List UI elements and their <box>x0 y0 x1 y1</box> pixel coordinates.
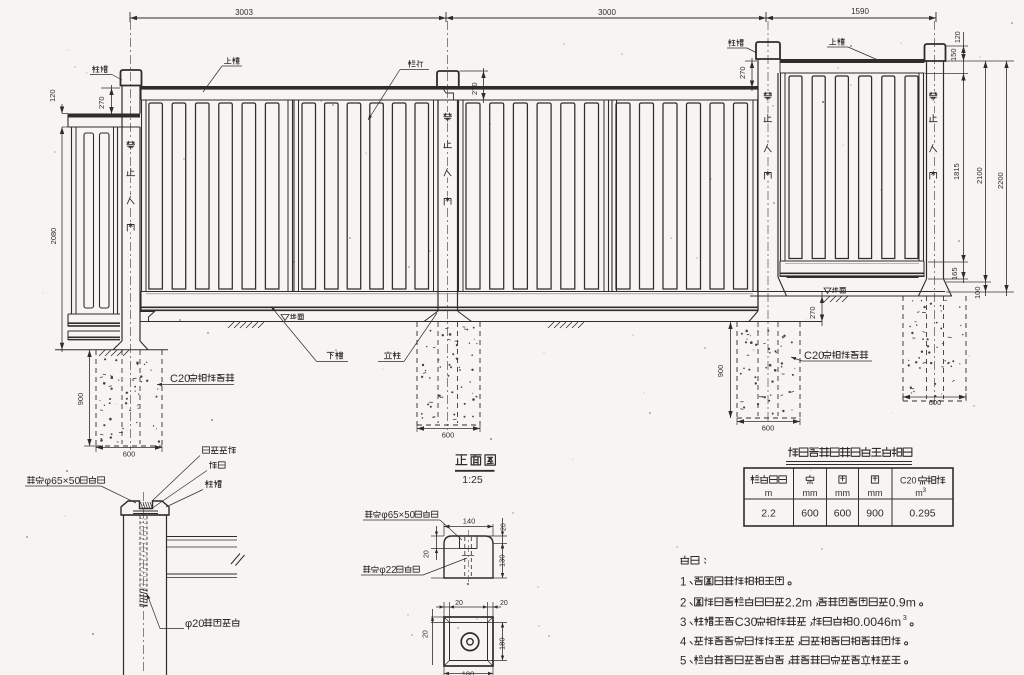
svg-text:2200: 2200 <box>996 172 1005 189</box>
svg-text:3003: 3003 <box>235 8 253 17</box>
svg-text:20: 20 <box>501 523 508 531</box>
svg-text:270: 270 <box>738 66 747 79</box>
svg-text:2.2: 2.2 <box>761 508 776 520</box>
svg-text:1: 1 <box>680 577 686 589</box>
svg-text:m: m <box>765 488 773 498</box>
svg-text:600: 600 <box>801 508 819 520</box>
svg-text:120: 120 <box>48 89 57 102</box>
svg-text:φ20: φ20 <box>185 618 204 630</box>
svg-text:140: 140 <box>463 517 476 526</box>
svg-text:2.2m: 2.2m <box>785 596 812 610</box>
svg-text:20: 20 <box>424 550 431 558</box>
svg-text:900: 900 <box>866 508 884 520</box>
svg-text:900: 900 <box>716 365 725 378</box>
svg-text:20: 20 <box>455 600 463 607</box>
svg-text:2: 2 <box>680 598 686 610</box>
svg-text:2080: 2080 <box>49 228 58 245</box>
svg-text:1815: 1815 <box>952 163 961 180</box>
svg-text:mm: mm <box>835 488 850 498</box>
svg-text:0.295: 0.295 <box>909 508 935 520</box>
svg-text:1:25: 1:25 <box>462 474 483 486</box>
svg-text:180: 180 <box>498 637 507 650</box>
svg-text:180: 180 <box>462 670 475 675</box>
svg-text:C20: C20 <box>804 350 824 362</box>
svg-text:165: 165 <box>950 267 959 280</box>
svg-text:600: 600 <box>929 398 942 407</box>
svg-text:900: 900 <box>76 393 85 406</box>
svg-text:150: 150 <box>949 48 958 61</box>
svg-text:C30: C30 <box>735 615 758 629</box>
svg-text:20: 20 <box>500 600 508 607</box>
svg-text:0.9m: 0.9m <box>889 596 916 610</box>
svg-text:3: 3 <box>923 487 927 494</box>
svg-text:600: 600 <box>834 508 852 520</box>
svg-text:20: 20 <box>423 630 430 638</box>
svg-text:100: 100 <box>973 286 982 299</box>
svg-text:3: 3 <box>903 615 907 622</box>
svg-text:φ22: φ22 <box>379 565 396 576</box>
svg-text:φ65×50: φ65×50 <box>381 510 415 521</box>
svg-text:120: 120 <box>955 31 962 43</box>
svg-text:270: 270 <box>470 82 479 95</box>
svg-text:4: 4 <box>680 637 687 649</box>
svg-text:3000: 3000 <box>598 8 616 17</box>
svg-text:600: 600 <box>123 450 136 459</box>
svg-text:600: 600 <box>442 431 455 440</box>
svg-text:mm: mm <box>803 488 818 498</box>
svg-text:270: 270 <box>97 96 106 109</box>
svg-text:φ65×50: φ65×50 <box>44 476 80 487</box>
svg-text:130: 130 <box>498 554 507 567</box>
svg-text:600: 600 <box>762 424 775 433</box>
svg-text:3: 3 <box>680 617 686 629</box>
svg-text:C20: C20 <box>170 373 190 385</box>
svg-text:C20: C20 <box>900 476 917 486</box>
svg-text:mm: mm <box>868 488 883 498</box>
svg-text:1590: 1590 <box>851 7 869 16</box>
svg-text:5: 5 <box>680 656 686 668</box>
svg-text:2100: 2100 <box>975 167 984 184</box>
svg-text:270: 270 <box>808 306 817 319</box>
svg-text:0.0046m: 0.0046m <box>853 615 901 629</box>
